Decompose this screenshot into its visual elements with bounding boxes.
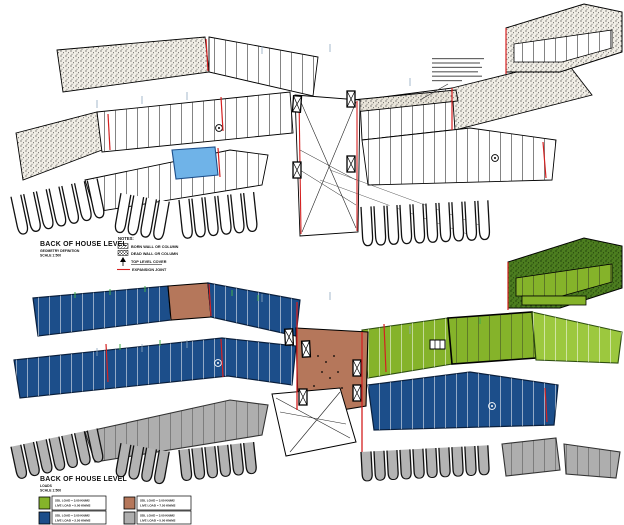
column-symbol [293, 162, 301, 178]
bottom-plan-subtitle1: LOADS [40, 484, 53, 488]
legend-brown-line2: LIVE LOAD = 7.50 KN/M2 [140, 504, 176, 508]
legend-green-line1: SDL LOAD = 3.00 KN/M2 [55, 499, 90, 503]
top-plan-subtitle1: GEOMETRY DEFINITION [40, 249, 80, 253]
column-symbol [353, 385, 361, 401]
legend-item-green: SDL LOAD = 3.00 KN/M2 LIVE LOAD = 5.00 K… [39, 496, 106, 510]
column-symbol [302, 341, 311, 357]
load-band-row2 [14, 338, 296, 398]
brown-bay-patch [168, 283, 211, 320]
legend-item-blue: SDL LOAD = 3.00 KN/M2 LIVE LOAD = 2.50 K… [39, 511, 106, 524]
legend-item-gray: SDL LOAD = 3.00 KN/M2 LIVE LOAD = 5.00 K… [124, 511, 191, 524]
column-symbol [353, 360, 361, 376]
note-top-level-cover: TOP LEVEL COVER [131, 260, 167, 264]
vent-symbol [430, 340, 445, 349]
highlighted-bay-patch [172, 147, 218, 179]
top-plan-subtitle2: SCALE 1:500 [40, 254, 61, 258]
stipple-band-second-left [16, 112, 102, 180]
bay-band-right-lower [362, 128, 556, 185]
drawing-sheet: BACK OF HOUSE LEVEL GEOMETRY DEFINITION … [0, 0, 624, 525]
legend-swatch-blue [39, 512, 50, 524]
detached-piece-top-right [506, 4, 622, 74]
legend-blue-line2: LIVE LOAD = 2.50 KN/M2 [55, 519, 91, 523]
column-symbol [292, 96, 301, 113]
bay-band-second-row [97, 92, 293, 152]
bottom-plan-title: BACK OF HOUSE LEVEL [40, 476, 128, 483]
note-born-wall: BORN WALL OR COLUMN [131, 245, 179, 249]
legend-swatch-gray [124, 512, 135, 524]
legend-item-brown: SDL LOAD = 3.00 KN/M2 LIVE LOAD = 7.50 K… [124, 496, 191, 510]
notes-heading: NOTES: [118, 236, 134, 241]
bay-band-top-mid [209, 37, 318, 96]
legend-green-line2: LIVE LOAD = 5.00 KN/M2 [55, 504, 91, 508]
column-symbol [347, 91, 355, 107]
legend-gray-line1: SDL LOAD = 3.00 KN/M2 [140, 514, 175, 518]
top-level-cover-symbol [120, 257, 126, 266]
bottom-plan-subtitle2: SCALE 1:500 [40, 489, 61, 493]
load-band-row2-right [368, 372, 558, 430]
legend-brown-line1: SDL LOAD = 3.00 KN/M2 [140, 499, 175, 503]
legend-blue-line1: SDL LOAD = 3.00 KN/M2 [55, 514, 90, 518]
column-symbol [285, 329, 294, 345]
finger-walls-right [361, 200, 490, 246]
load-legend: SDL LOAD = 3.00 KN/M2 LIVE LOAD = 5.00 K… [39, 496, 191, 524]
ramp [272, 388, 356, 456]
detached-piece-green [508, 238, 622, 310]
top-plan-title: BACK OF HOUSE LEVEL [40, 241, 128, 248]
stipple-band-top-left [57, 37, 209, 92]
loads-plan: BACK OF HOUSE LEVEL LOADS SCALE 1:500 SD… [11, 238, 622, 524]
note-expansion-joint: EXPANSION JOINT [132, 268, 167, 272]
column-symbol [347, 156, 355, 172]
born-wall-symbol [118, 244, 128, 249]
plan-drawings: BACK OF HOUSE LEVEL GEOMETRY DEFINITION … [0, 0, 624, 525]
finger-walls-right-gray [361, 445, 489, 481]
legend-gray-line2: LIVE LOAD = 5.00 KN/M2 [140, 519, 176, 523]
load-band-row1 [33, 283, 300, 336]
legend-swatch-green [39, 497, 50, 509]
dead-wall-symbol [118, 251, 128, 256]
geometry-plan: BACK OF HOUSE LEVEL GEOMETRY DEFINITION … [11, 4, 622, 272]
legend-swatch-brown [124, 497, 135, 509]
note-dead-wall: DEAD WALL OR COLUMN [131, 252, 178, 256]
load-band-green [362, 312, 622, 378]
column-symbol [299, 389, 307, 405]
